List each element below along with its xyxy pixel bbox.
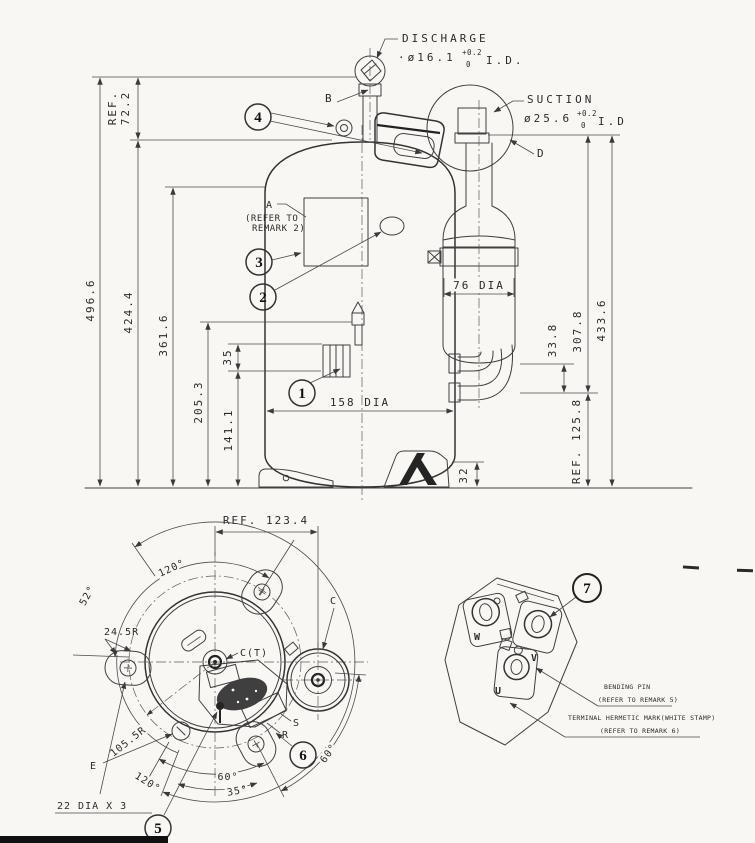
dim-height-35: 35 [221,348,234,365]
discharge-fitting [361,60,381,81]
terminal-w-label: W [474,632,481,643]
dim-width-76: 76 DIA [453,279,505,292]
name-plate [304,198,368,266]
callout-s-leader [281,714,291,721]
suction-label: SUCTION [527,93,594,106]
suction-detail-circle [427,85,513,171]
dim-ref72-value: 72.2 [119,91,132,126]
key-slot [179,628,208,654]
callout-c: C [330,596,337,607]
dim-right-433: 433.6 [595,298,608,341]
terminal-plate [445,578,577,745]
callout-s: S [293,718,300,729]
engineering-drawing: 496.6 REF. 72.2 424.4 361.6 205.3 141.1 … [0,0,755,843]
balloon-3: 3 [246,249,301,275]
terminal-detail-view: W V U 7 BENDING [445,574,715,745]
dim-height-424: 424.4 [122,290,135,333]
callout-c-leader [323,608,334,649]
oil-hole [172,722,190,740]
terminal-cover [375,113,444,167]
callout-d: D [537,147,547,160]
pump-assembly [199,660,287,728]
balloon-2-number: 2 [259,290,267,306]
dim-ref72-label: REF. [106,91,119,126]
discharge-id-suffix: I.D. [486,54,525,67]
dim-width-158: 158 DIA [330,396,390,409]
accumulator-clamp-band [428,248,518,266]
terminal-u-label: U [495,686,502,697]
suction-pipes [449,345,513,402]
suction-callout: SUCTION ø25.6 +0.2 0 I.D [494,93,627,130]
compressor-shell [265,142,455,487]
balloon-2: 2 [250,232,381,310]
hermetic-mark-label: TERMINAL HERMETIC MARK(WHITE STAMP) [568,714,715,722]
callout-a-letter: A [266,200,273,211]
angle-60-right: 60° [318,742,339,766]
scan-artifact-mark-2 [737,569,753,573]
angle-120-low: 120° [132,771,162,795]
suction-id-suffix: I.D [598,115,627,128]
hermetic-mark-note: TERMINAL HERMETIC MARK(WHITE STAMP) (REF… [510,703,715,737]
callout-a: A (REFER TO REMARK 2) [245,200,306,234]
dim-height-496: 496.6 [84,278,97,321]
bottom-view: REF. 123.4 120° 52° 120° 60° 35° 60° 24.… [55,514,368,841]
callout-b: B [325,92,335,105]
discharge-label: DISCHARGE [402,32,489,45]
accumulator-bottom-circle [283,642,362,720]
dim-foot-32: 32 [457,466,470,483]
dim-height-205: 205.3 [192,380,205,423]
balloon-6-number: 6 [299,748,307,764]
suction-tol-upper: +0.2 [577,109,597,118]
dim-right-ref125: REF. 125.8 [570,398,583,484]
suction-tol-lower: 0 [581,121,586,130]
dim-right-33: 33.8 [546,323,559,358]
scan-artifact-mark-1 [683,565,699,569]
main-elevation-view: 496.6 REF. 72.2 424.4 361.6 205.3 141.1 … [84,32,692,500]
angle-60-left: 60° [217,772,238,783]
angle-120-top: 120° [157,558,187,580]
radius-245-label: 24.5R [104,627,139,638]
balloon-4: 4 [245,104,422,153]
callout-ct: C(T) [240,648,268,659]
balloon-4-number: 4 [254,110,262,126]
balloon-6: 6 [276,733,316,768]
terminal-v-label: V [531,653,538,664]
holes-callout: 22 DIA X 3 [55,682,152,813]
angle-52: 52° [78,584,98,608]
scanned-drawing-page: 496.6 REF. 72.2 424.4 361.6 205.3 141.1 … [0,0,755,843]
lifting-ring [336,120,352,136]
scan-artifact-bar [0,836,168,843]
callout-d-leader [510,140,534,154]
dimension-lines-right [267,136,612,486]
ref-123-dimension: REF. 123.4 [215,514,318,648]
dim-right-307: 307.8 [571,309,584,352]
discharge-tol-upper: +0.2 [462,48,482,57]
dim-height-361: 361.6 [157,313,170,356]
angle-35: 35° [226,784,249,798]
dim-ref-123: REF. 123.4 [223,514,309,527]
callout-ct-leader [226,653,238,659]
balloon-7-number: 7 [583,581,591,597]
bending-pin-ref: (REFER TO REMARK 5) [598,696,678,704]
callout-r: R [282,730,289,741]
dim-height-141: 141.1 [222,408,235,451]
hermetic-mark-ref: (REFER TO REMARK 6) [600,727,680,735]
discharge-diameter: ·ø16.1 [398,51,456,64]
bending-pin-note: BENDING PIN (REFER TO REMARK 5) [536,668,678,706]
oil-stub-fitting [323,345,350,377]
foot-pad-top [235,563,289,620]
bending-pin-label: BENDING PIN [604,683,650,691]
shell-oval-mark [380,217,404,235]
balloon-5-number: 5 [154,821,162,837]
balloon-3-number: 3 [255,255,263,271]
discharge-callout: DISCHARGE ·ø16.1 +0.2 0 I.D. [377,32,525,69]
balloon-1-number: 1 [298,386,306,402]
radius-245-callout: 24.5R [104,627,139,654]
discharge-tol-lower: 0 [466,60,471,69]
suction-diameter: ø25.6 [524,112,572,125]
callout-a-note-1: (REFER TO [245,214,298,224]
dimension-lines-left [100,78,238,486]
callout-e: E [90,761,97,772]
callout-a-note-2: REMARK 2) [252,224,305,234]
holes-label: 22 DIA X 3 [57,801,127,812]
